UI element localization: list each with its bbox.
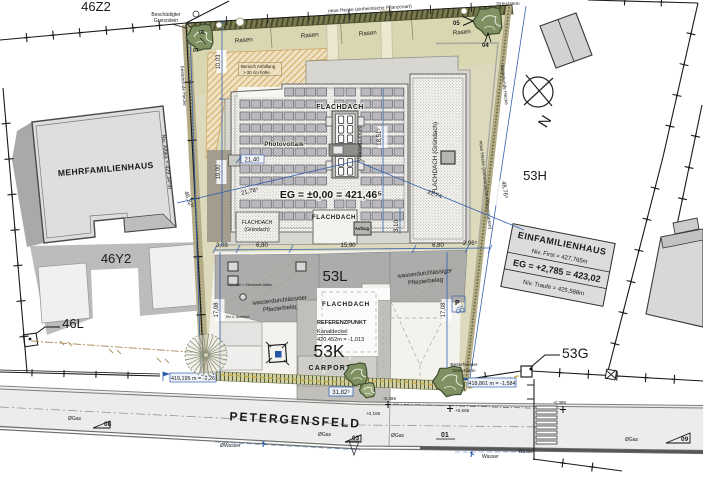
svg-text:53G: 53G: [562, 345, 588, 361]
svg-text:21,40: 21,40: [244, 158, 260, 164]
svg-text:+0,165: +0,165: [366, 411, 381, 416]
svg-text:> 30 cm höhe: > 30 cm höhe: [243, 70, 270, 75]
svg-text:3,10: 3,10: [394, 220, 400, 232]
svg-text:46Y2: 46Y2: [101, 251, 131, 266]
svg-text:FLACHDACH: FLACHDACH: [242, 220, 273, 226]
svg-text:53L: 53L: [322, 268, 347, 285]
svg-text:17,08: 17,08: [214, 302, 220, 318]
svg-text:09: 09: [681, 436, 689, 443]
svg-text:3,03: 3,03: [216, 243, 228, 249]
svg-text:Ein u. Ausfahrt: Ein u. Ausfahrt: [226, 315, 249, 319]
svg-text:08: 08: [104, 421, 112, 428]
svg-text:Bereich Anfüllung: Bereich Anfüllung: [241, 64, 276, 69]
svg-text:420.650 = Oberkante Attika: 420.650 = Oberkante Attika: [228, 283, 272, 287]
svg-text:ØGas: ØGas: [625, 437, 639, 443]
svg-text:19,00: 19,00: [216, 164, 222, 180]
svg-text:06: 06: [199, 30, 205, 36]
svg-text:17,08: 17,08: [441, 302, 447, 318]
svg-text:(Gründach): (Gründach): [244, 227, 270, 233]
svg-text:53K: 53K: [313, 341, 344, 361]
svg-text:ØGas: ØGas: [318, 432, 332, 438]
svg-text:ØWasser: ØWasser: [220, 443, 241, 449]
svg-text:31,82⁵: 31,82⁵: [332, 389, 350, 396]
svg-text:01: 01: [441, 432, 449, 439]
svg-text:FLACHDACH: FLACHDACH: [316, 104, 364, 111]
svg-text:Aufzug: Aufzug: [355, 226, 370, 231]
svg-text:+0,665: +0,665: [455, 408, 470, 413]
svg-text:REFERENZPUNKT: REFERENZPUNKT: [317, 320, 367, 326]
svg-text:-0,395: -0,395: [383, 396, 396, 401]
svg-text:FLACHDACH: FLACHDACH: [312, 214, 356, 221]
svg-text:419,195 m = -2,26: 419,195 m = -2,26: [171, 376, 215, 382]
svg-text:15,90: 15,90: [340, 243, 356, 249]
svg-text:FLACHDACH (Gründach): FLACHDACH (Gründach): [432, 122, 439, 194]
svg-text:Wasser: Wasser: [482, 454, 499, 460]
svg-text:-0,385: -0,385: [553, 400, 566, 405]
svg-text:05: 05: [453, 21, 460, 27]
svg-text:Wärmepumpen: Wärmepumpen: [358, 125, 364, 161]
svg-text:Grenzstein: Grenzstein: [154, 18, 178, 24]
svg-text:10,03: 10,03: [216, 54, 222, 70]
svg-text:6,80: 6,80: [432, 243, 444, 249]
svg-text:FLACHDACH: FLACHDACH: [322, 301, 370, 308]
svg-text:46Z2: 46Z2: [81, 0, 111, 14]
svg-text:04: 04: [482, 43, 489, 49]
svg-text:07: 07: [193, 48, 199, 54]
svg-text:18,51⁵: 18,51⁵: [376, 128, 383, 146]
svg-text:6,80: 6,80: [256, 243, 268, 249]
svg-text:46L: 46L: [62, 316, 84, 331]
svg-text:Kanaldeckel: Kanaldeckel: [317, 329, 347, 335]
svg-text:ØGas: ØGas: [391, 433, 405, 439]
svg-text:Grenzstein: Grenzstein: [496, 1, 520, 7]
svg-text:418,861 m = -1,584: 418,861 m = -1,584: [469, 381, 516, 387]
svg-text:2,96⁵: 2,96⁵: [463, 240, 478, 247]
svg-text:P: P: [455, 300, 460, 307]
svg-text:CARPORT: CARPORT: [308, 365, 351, 372]
svg-text:ØGas: ØGas: [68, 416, 82, 422]
svg-text:Bestehender: Bestehender: [450, 362, 478, 368]
svg-text:EG = ±0,00 = 421,46⁵: EG = ±0,00 = 421,46⁵: [280, 189, 382, 201]
svg-text:53H: 53H: [523, 168, 547, 183]
svg-text:Grenzstein: Grenzstein: [452, 368, 476, 374]
svg-text:Photovoltaik: Photovoltaik: [264, 141, 304, 148]
